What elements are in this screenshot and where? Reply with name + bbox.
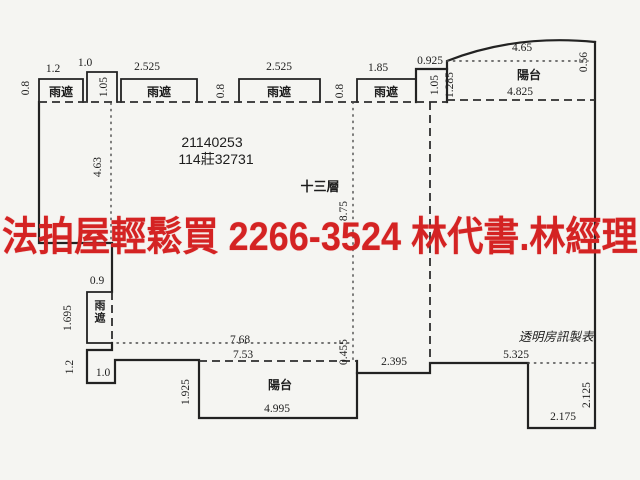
dimension-label: 1.0 bbox=[96, 367, 111, 379]
plan-text-label: 遮 bbox=[95, 311, 106, 325]
plan-text-label: 雨遮 bbox=[49, 84, 73, 99]
plan-text-label: 114莊32731 bbox=[178, 151, 253, 167]
plan-text-label: 21140253 bbox=[181, 134, 242, 150]
dimension-label: 4.825 bbox=[507, 86, 533, 98]
dimension-label: 1.0 bbox=[78, 57, 93, 69]
ad-banner: 法拍屋輕鬆買 2266-3524 林代書.林經理 bbox=[2, 212, 578, 264]
dimension-label: 2.125 bbox=[581, 382, 593, 408]
ad-banner-text: 法拍屋輕鬆買 2266-3524 林代書.林經理 bbox=[2, 215, 638, 259]
dimension-label: 1.85 bbox=[368, 62, 388, 74]
dimension-label: 1.2 bbox=[64, 360, 76, 375]
dimension-label: 7.68 bbox=[230, 334, 250, 346]
plan-text-label: 雨遮 bbox=[374, 84, 398, 99]
dimension-label: 0.9 bbox=[90, 275, 105, 287]
plan-text-label: 雨 bbox=[95, 299, 106, 312]
dimension-label: 7.53 bbox=[233, 349, 253, 361]
plan-text-label: 雨遮 bbox=[267, 84, 291, 99]
dimension-label: 0.8 bbox=[334, 84, 346, 99]
dimension-label: 2.525 bbox=[266, 61, 292, 73]
dimension-label: 1.695 bbox=[62, 305, 74, 331]
dimension-label: 2.175 bbox=[550, 411, 576, 423]
plan-text-label: 雨遮 bbox=[147, 84, 171, 99]
dimension-label: 4.995 bbox=[264, 403, 290, 415]
dimension-label: 0.56 bbox=[578, 52, 590, 72]
dimension-label: 4.63 bbox=[92, 157, 104, 177]
plan-text-label: 十三層 bbox=[300, 179, 339, 194]
dimension-label: 1.2 bbox=[46, 63, 61, 75]
dimension-label: 0.8 bbox=[215, 84, 227, 99]
dimension-label: 1.05 bbox=[98, 77, 110, 97]
dimension-label: 4.65 bbox=[512, 42, 532, 54]
dimension-label: 5.325 bbox=[503, 349, 529, 361]
plan-text-label: 陽台 bbox=[268, 377, 292, 392]
plan-text-label: 透明房訊製表 bbox=[518, 330, 595, 344]
dimension-label: 0.8 bbox=[20, 81, 32, 96]
dimension-label: 2.395 bbox=[381, 356, 407, 368]
floor-plan-scan: 0.81.21.01.052.5250.82.5250.81.850.9251.… bbox=[0, 0, 640, 480]
dimension-label: 1.925 bbox=[180, 379, 192, 405]
dimension-label: 0.455 bbox=[338, 339, 350, 365]
dimension-label: 1.05 bbox=[429, 75, 441, 95]
plan-text-label: 陽台 bbox=[517, 67, 541, 82]
dimension-label: 2.525 bbox=[134, 61, 160, 73]
dimension-label: 1.285 bbox=[444, 72, 456, 98]
wall-bottom-left-and-balcony bbox=[87, 343, 357, 418]
dimension-label: 0.925 bbox=[417, 55, 443, 67]
